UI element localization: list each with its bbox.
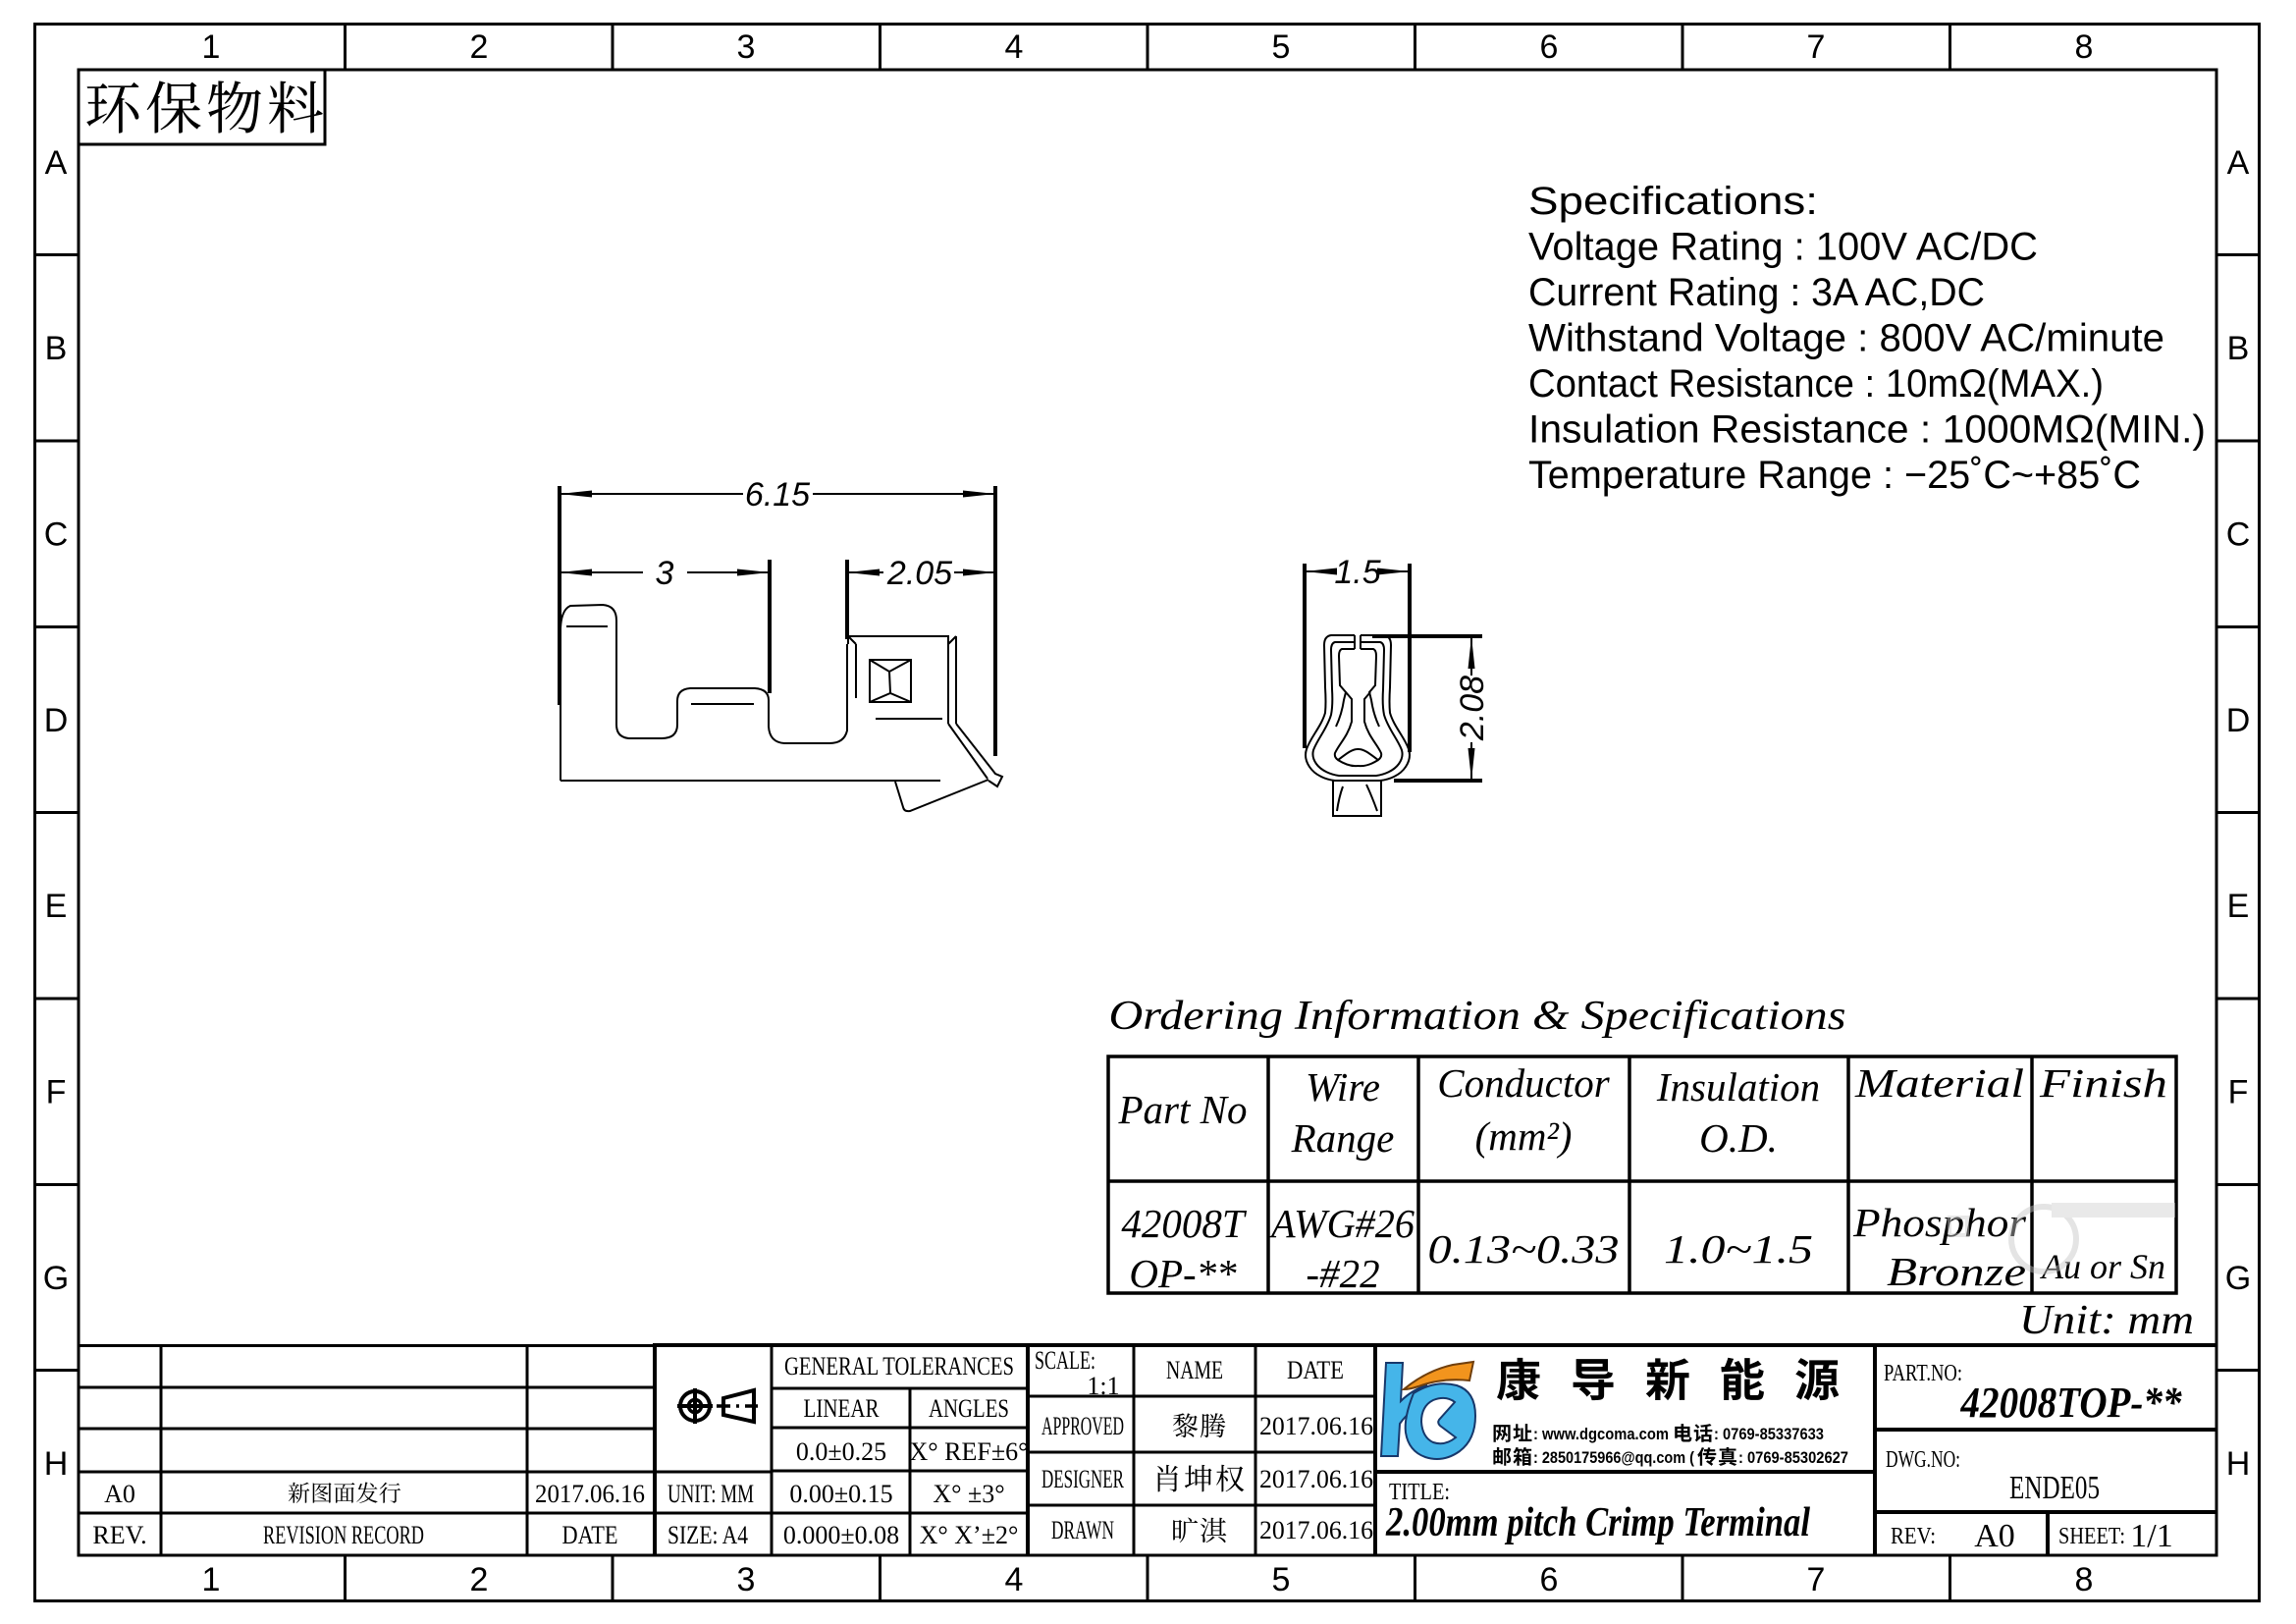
- svg-text:NAME: NAME: [1166, 1356, 1223, 1384]
- svg-text:42008T: 42008T: [1121, 1201, 1248, 1246]
- svg-text:PART.NO:: PART.NO:: [1884, 1361, 1962, 1386]
- svg-text:OP-**: OP-**: [1129, 1251, 1237, 1296]
- svg-text:B: B: [45, 330, 68, 367]
- svg-text:A: A: [2227, 144, 2250, 182]
- svg-text:: 0769-85337633: : 0769-85337633: [1714, 1425, 1824, 1443]
- svg-text:0.13~0.33: 0.13~0.33: [1428, 1226, 1620, 1272]
- svg-text:APPROVED: APPROVED: [1041, 1412, 1124, 1440]
- svg-text:REVISION RECORD: REVISION RECORD: [263, 1521, 424, 1549]
- svg-text:C: C: [44, 516, 69, 554]
- svg-text:Current Rating : 3A AC,DC: Current Rating : 3A AC,DC: [1528, 271, 1985, 314]
- svg-text:2017.06.16: 2017.06.16: [535, 1480, 645, 1508]
- svg-text:DATE: DATE: [1287, 1356, 1344, 1384]
- svg-text:1/1: 1/1: [2130, 1518, 2172, 1554]
- svg-text:7: 7: [1807, 1561, 1826, 1598]
- svg-text:LINEAR: LINEAR: [804, 1394, 881, 1423]
- svg-text:3: 3: [656, 555, 674, 592]
- svg-text:3: 3: [737, 1561, 756, 1598]
- svg-text:42008TOP-**: 42008TOP-**: [1960, 1379, 2183, 1427]
- svg-text:8: 8: [2075, 1561, 2094, 1598]
- svg-text:F: F: [46, 1074, 67, 1111]
- svg-text:: 0769-85302627: : 0769-85302627: [1738, 1448, 1848, 1467]
- svg-text:H: H: [2226, 1445, 2251, 1483]
- svg-text:: www.dgcoma.com: : www.dgcoma.com: [1533, 1425, 1669, 1443]
- svg-text:Material: Material: [1854, 1060, 2024, 1106]
- svg-text:F: F: [2228, 1074, 2249, 1111]
- svg-text:X° X’±2°: X° X’±2°: [920, 1521, 1019, 1549]
- svg-text:Insulation: Insulation: [1656, 1064, 1820, 1110]
- svg-text:2.08: 2.08: [1454, 676, 1491, 741]
- svg-text:O.D.: O.D.: [1699, 1115, 1778, 1161]
- svg-text:UNIT: MM: UNIT: MM: [667, 1480, 754, 1508]
- svg-text:GENERAL TOLERANCES: GENERAL TOLERANCES: [784, 1352, 1014, 1380]
- svg-text:8: 8: [2075, 28, 2094, 66]
- svg-text:DATE: DATE: [562, 1521, 618, 1549]
- svg-text:Withstand Voltage : 800V AC/mi: Withstand Voltage : 800V AC/minute: [1528, 317, 2164, 360]
- svg-text:DWG.NO:: DWG.NO:: [1886, 1447, 1960, 1473]
- svg-text:1.0~1.5: 1.0~1.5: [1664, 1226, 1813, 1272]
- svg-text:D: D: [2226, 702, 2251, 739]
- svg-text:Ordering Information & Specifi: Ordering Information & Specifications: [1109, 994, 1846, 1039]
- svg-text:0.00±0.15: 0.00±0.15: [789, 1480, 892, 1508]
- svg-text:X° ±3°: X° ±3°: [933, 1480, 1004, 1508]
- svg-text:6.15: 6.15: [745, 476, 810, 514]
- svg-text:DRAWN: DRAWN: [1051, 1516, 1114, 1544]
- svg-text:6: 6: [1540, 1561, 1559, 1598]
- svg-text:D: D: [44, 702, 69, 739]
- svg-text:2: 2: [470, 1561, 489, 1598]
- svg-text:2.05: 2.05: [886, 555, 952, 592]
- svg-text:Insulation Resistance : 1000MΩ: Insulation Resistance : 1000MΩ(MIN.): [1528, 408, 2206, 452]
- svg-text:0.000±0.08: 0.000±0.08: [783, 1521, 899, 1549]
- svg-text:0.0±0.25: 0.0±0.25: [796, 1437, 886, 1466]
- svg-text:Part No: Part No: [1118, 1087, 1248, 1132]
- svg-text:5: 5: [1272, 1561, 1291, 1598]
- svg-text:C: C: [2226, 516, 2251, 554]
- svg-text:1: 1: [202, 28, 221, 66]
- svg-text:DESIGNER: DESIGNER: [1041, 1465, 1124, 1493]
- svg-text:G: G: [2225, 1260, 2251, 1297]
- svg-text:A0: A0: [1974, 1518, 2015, 1554]
- svg-text:4: 4: [1005, 1561, 1024, 1598]
- svg-text:3: 3: [737, 28, 756, 66]
- svg-text:Finish: Finish: [2039, 1060, 2167, 1106]
- svg-text:REV:: REV:: [1891, 1524, 1936, 1549]
- svg-text:Bronze: Bronze: [1887, 1249, 2026, 1294]
- svg-text:Phosphor: Phosphor: [1852, 1200, 2027, 1245]
- svg-text:Conductor: Conductor: [1437, 1060, 1610, 1106]
- svg-text:5: 5: [1272, 28, 1291, 66]
- svg-text:4: 4: [1005, 28, 1024, 66]
- svg-text:Specifications:: Specifications:: [1528, 180, 1818, 223]
- svg-text:SCALE:: SCALE:: [1035, 1346, 1095, 1375]
- svg-text:B: B: [2227, 330, 2250, 367]
- svg-text:Range: Range: [1291, 1115, 1395, 1161]
- svg-text:ENDE05: ENDE05: [2009, 1470, 2100, 1506]
- svg-text:E: E: [45, 888, 68, 925]
- svg-text:1:1: 1:1: [1087, 1372, 1119, 1400]
- svg-text:2017.06.16: 2017.06.16: [1259, 1412, 1373, 1440]
- svg-text:Temperature Range : −25˚C~+85˚: Temperature Range : −25˚C~+85˚C: [1528, 454, 2141, 497]
- svg-text:Unit: mm: Unit: mm: [2019, 1298, 2194, 1343]
- svg-text:: 2850175966@qq.com (: : 2850175966@qq.com (: [1533, 1448, 1694, 1467]
- svg-text:Contact Resistance : 10mΩ(MAX.: Contact Resistance : 10mΩ(MAX.): [1528, 362, 2104, 406]
- svg-text:2017.06.16: 2017.06.16: [1259, 1516, 1373, 1544]
- svg-text:1.5: 1.5: [1334, 554, 1380, 591]
- svg-text:ANGLES: ANGLES: [929, 1394, 1009, 1423]
- svg-text:-#22: -#22: [1306, 1251, 1379, 1296]
- svg-text:2017.06.16: 2017.06.16: [1259, 1465, 1373, 1493]
- svg-text:G: G: [43, 1260, 69, 1297]
- svg-text:2.00mm pitch Crimp Terminal: 2.00mm pitch Crimp Terminal: [1385, 1500, 1810, 1545]
- svg-text:E: E: [2227, 888, 2250, 925]
- svg-text:REV.: REV.: [92, 1521, 146, 1549]
- svg-text:A0: A0: [104, 1480, 135, 1508]
- svg-text:2: 2: [470, 28, 489, 66]
- svg-text:6: 6: [1540, 28, 1559, 66]
- svg-text:SIZE: A4: SIZE: A4: [667, 1521, 748, 1549]
- svg-text:(mm²): (mm²): [1475, 1113, 1573, 1159]
- svg-text:Voltage Rating : 100V AC/DC: Voltage Rating : 100V AC/DC: [1528, 226, 2038, 269]
- svg-text:Wire: Wire: [1306, 1064, 1380, 1110]
- svg-text:H: H: [44, 1445, 69, 1483]
- svg-text:AWG#26: AWG#26: [1268, 1201, 1415, 1246]
- svg-text:7: 7: [1807, 28, 1826, 66]
- svg-text:A: A: [45, 144, 68, 182]
- svg-text:SHEET:: SHEET:: [2058, 1524, 2125, 1549]
- svg-text:X° REF±6°: X° REF±6°: [909, 1437, 1028, 1466]
- svg-text:1: 1: [202, 1561, 221, 1598]
